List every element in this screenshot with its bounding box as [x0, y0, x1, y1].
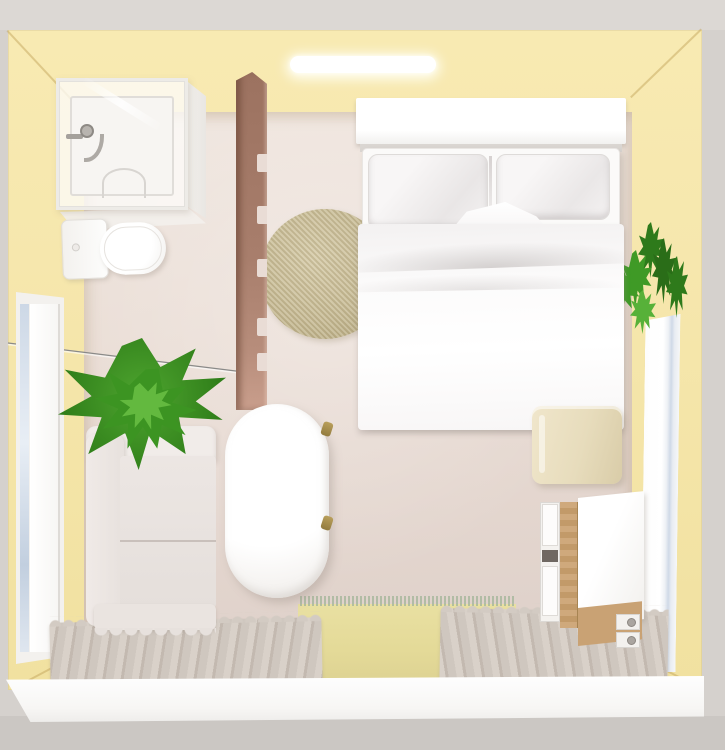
sofa-front-edge	[94, 604, 216, 630]
toilet-bowl	[99, 221, 167, 275]
desk-wood-panel	[560, 502, 578, 628]
slat-gap	[257, 206, 267, 224]
desk-drawer	[542, 566, 558, 616]
toilet[interactable]	[61, 214, 173, 288]
potted-plant[interactable]	[58, 338, 238, 480]
slat-gap	[257, 259, 267, 277]
bathtub[interactable]	[225, 404, 329, 598]
shower-glass-side	[188, 82, 206, 224]
left-window[interactable]	[16, 292, 64, 664]
slat-gap	[257, 318, 267, 336]
desk[interactable]	[540, 496, 650, 650]
bed-headboard	[356, 98, 626, 144]
desk-castor-plate	[616, 632, 640, 648]
ceiling-light-bar[interactable]	[290, 56, 436, 73]
shower-cabin[interactable]	[54, 74, 210, 236]
front-wall-cutaway	[6, 676, 704, 722]
double-bed[interactable]	[356, 98, 626, 432]
window-glass	[20, 304, 29, 652]
castor-wheel	[627, 636, 636, 645]
desk-drawer-gap	[542, 550, 558, 562]
wood-slat-partition[interactable]	[236, 72, 267, 410]
desk-castor-plate	[616, 614, 640, 630]
sofa-seam	[120, 540, 216, 542]
castor-wheel	[627, 618, 636, 627]
desk-drawer	[542, 504, 558, 546]
backdrop-top	[0, 0, 725, 30]
shower-drain-arc	[102, 168, 146, 198]
sofa-fringe	[94, 628, 216, 640]
room-render	[0, 0, 725, 750]
slat-gap	[257, 353, 267, 371]
window-sash	[30, 304, 58, 652]
nightstand[interactable]	[532, 406, 622, 484]
slat-gap	[257, 154, 267, 172]
